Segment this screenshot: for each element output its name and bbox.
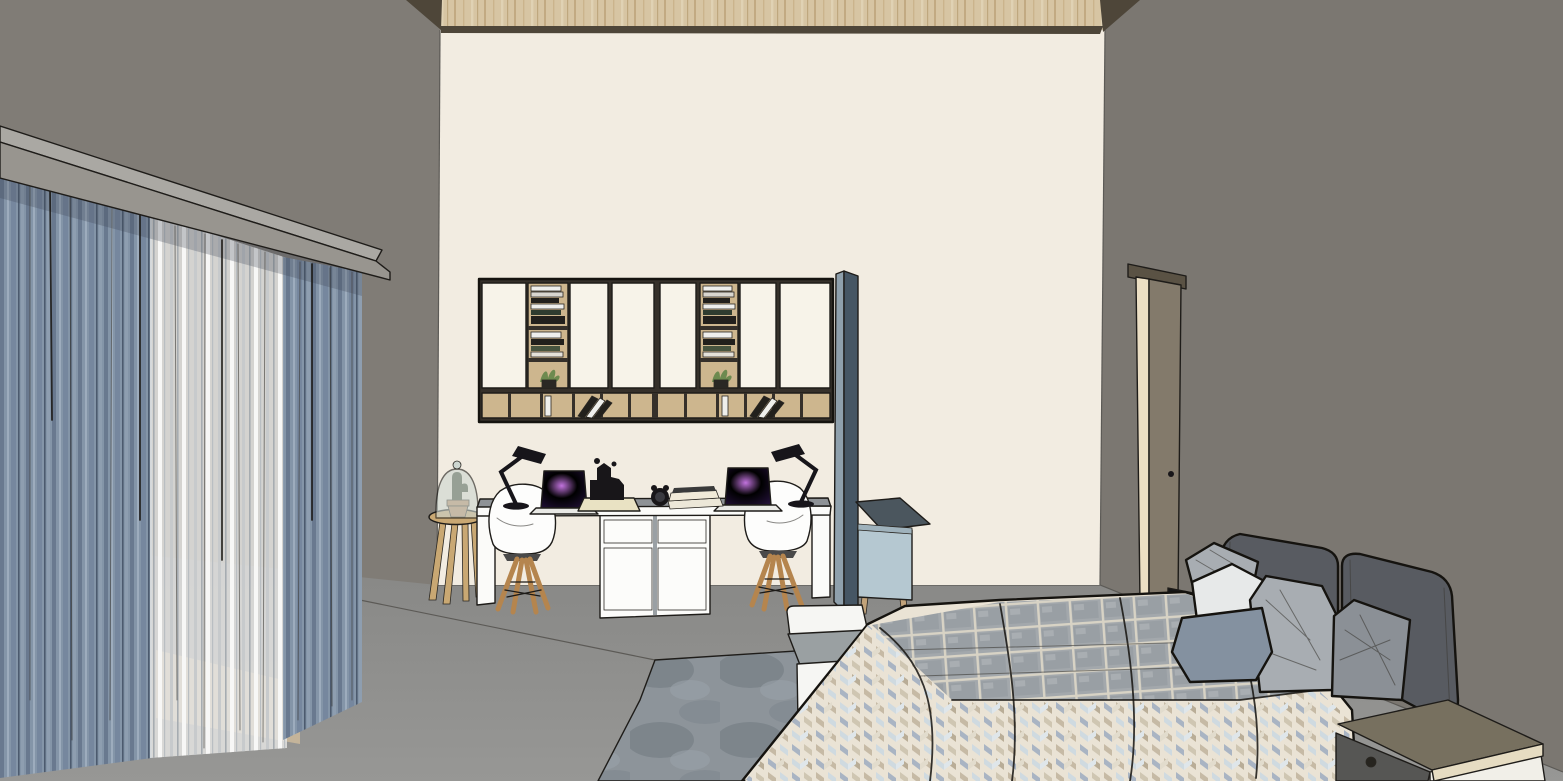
drawer-center-seam	[653, 515, 657, 615]
shelf-books	[531, 286, 565, 357]
pillow-patterned-right	[1332, 600, 1410, 700]
door-handle	[1168, 471, 1174, 477]
door-slab	[1149, 279, 1181, 606]
open-shelf-column-left	[528, 283, 568, 388]
drawer-door-right	[658, 548, 706, 610]
bedroom-render	[0, 0, 1563, 781]
ceiling-trim-line	[441, 26, 1103, 34]
pillow-slate-front	[1172, 608, 1272, 682]
scene-canvas	[0, 0, 1563, 781]
cabinet-body	[858, 528, 912, 600]
curtain-drape-left	[0, 168, 152, 778]
panel-side-face	[844, 271, 858, 616]
divider-panel	[834, 271, 858, 616]
desk-leg-right	[812, 513, 830, 598]
cloche-knob	[453, 461, 461, 469]
open-shelf-column-right	[700, 283, 738, 388]
alarm-clock	[651, 485, 669, 506]
ceiling-wood-beam	[418, 0, 1128, 30]
curtain-sheer-folds	[150, 214, 287, 758]
panel-edge-face	[834, 271, 844, 612]
drawer-small-right	[658, 520, 706, 543]
desk-drawer-unit	[600, 515, 710, 618]
wall-cabinet-unit	[479, 279, 833, 422]
book-stack-desk	[668, 486, 723, 509]
drawer-small-left	[604, 520, 652, 543]
curtain-drape-right	[283, 257, 362, 740]
drawer-door-left	[604, 548, 652, 610]
cabinet-cubby-row	[482, 393, 830, 418]
nightstand-knob	[1366, 757, 1376, 767]
